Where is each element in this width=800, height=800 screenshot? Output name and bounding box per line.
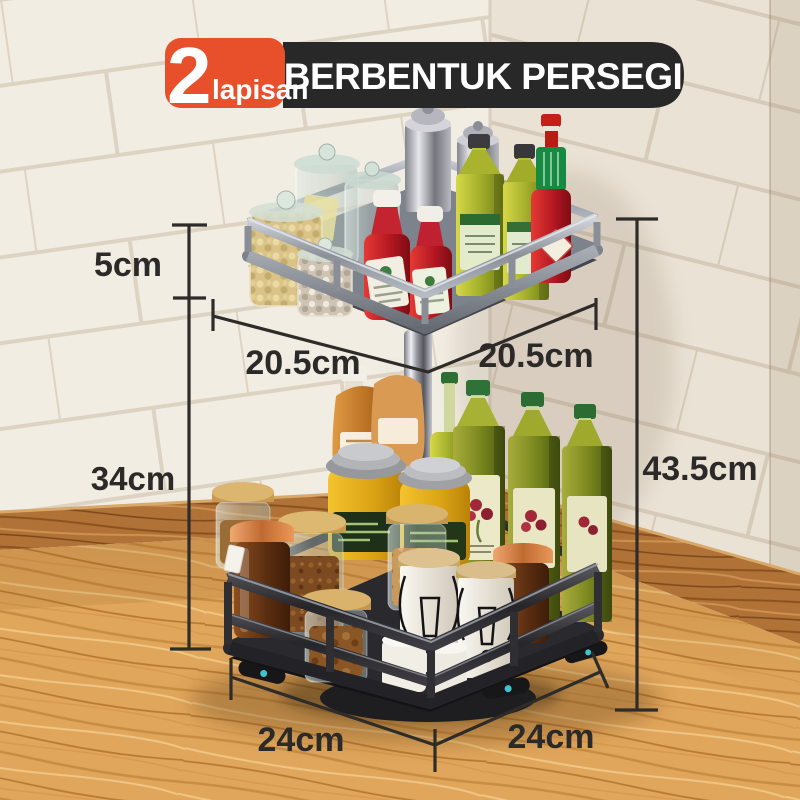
label-top-width-right: 20.5cm bbox=[478, 337, 593, 375]
label-column-height: 34cm bbox=[91, 460, 175, 497]
steel-shaker-1 bbox=[405, 102, 451, 212]
label-total-height: 43.5cm bbox=[642, 450, 757, 488]
product-photo: 5cm 34cm 20.5cm 20.5cm 43.5cm 24cm 24cm … bbox=[0, 0, 800, 800]
wall-far-right-shadow-band bbox=[770, 0, 800, 580]
header-badge: 2 lapisan BERBENTUK PERSEGI bbox=[165, 31, 684, 120]
label-base-width-right: 24cm bbox=[508, 718, 595, 756]
label-base-width-left: 24cm bbox=[258, 721, 345, 759]
badge-title: BERBENTUK PERSEGI bbox=[284, 56, 683, 97]
badge-layers-number: 2 bbox=[167, 31, 212, 120]
label-tier-height: 5cm bbox=[94, 246, 162, 284]
label-top-width-left: 20.5cm bbox=[245, 344, 360, 382]
